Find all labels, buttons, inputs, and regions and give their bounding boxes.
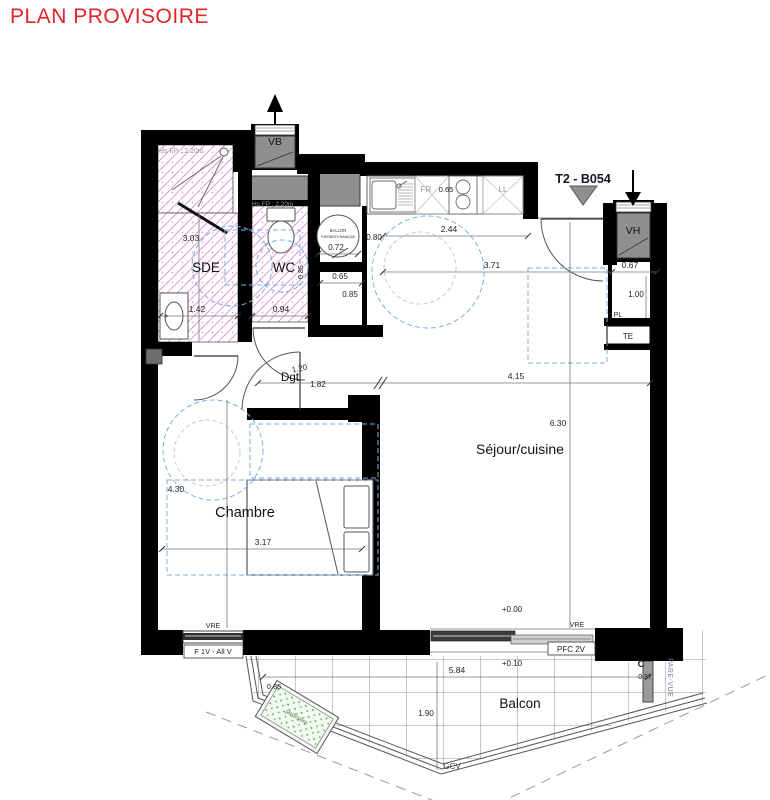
- floor-plan-canvas: PLAN PROVISOIRE: [0, 0, 770, 800]
- vh-unit: VH: [613, 170, 654, 262]
- window-spec-label: F 1V - All V: [194, 647, 232, 656]
- dim-sde-w: 1.42: [189, 304, 206, 314]
- te-label: TE: [623, 332, 633, 341]
- dim-sejour-h: 6.30: [550, 418, 567, 428]
- dim-pl-w: 0.67: [622, 260, 639, 270]
- window-type-label: VRE: [206, 623, 221, 630]
- pillow: [344, 532, 369, 572]
- pillow: [344, 486, 369, 528]
- electrical-panel: TE: [607, 326, 650, 344]
- fridge-label: FR: [421, 185, 432, 194]
- wall-niche-box: [146, 349, 162, 364]
- dim-niche-w: 0.65: [332, 272, 348, 281]
- bedroom-window: VRE F 1V - All V: [183, 623, 243, 658]
- vb-arrow-up-icon: [267, 94, 283, 124]
- level-sejour: +0.00: [502, 605, 523, 614]
- balcony: jardinière: [206, 630, 770, 800]
- vh-label: VH: [626, 225, 641, 237]
- hob: [449, 176, 477, 214]
- washer-label: LL: [499, 185, 508, 194]
- pare-vue-label: PARE-VUE: [666, 658, 673, 697]
- dim-pare-vue: 0.37: [638, 674, 652, 681]
- dim-niche-h: 0.85: [342, 290, 358, 299]
- floor-plan-svg: jardinière: [0, 0, 770, 800]
- closet-label: PL: [614, 312, 623, 319]
- dim-wc-w: 0.94: [273, 304, 290, 314]
- page-title: PLAN PROVISOIRE: [10, 5, 209, 29]
- room-sde: SDE: [192, 260, 220, 275]
- dim-dgt-l: 1.82: [310, 380, 326, 389]
- dim-sejour-w: 4.15: [508, 371, 525, 381]
- c-marker-label: C: [638, 659, 645, 670]
- ballon-label-1: BALLON: [330, 228, 347, 233]
- room-balcon: Balcon: [499, 696, 540, 711]
- dim-balcon-d: 1.90: [418, 709, 434, 718]
- room-sejour: Séjour/cuisine: [476, 441, 564, 457]
- dim-closet-w: 0.80: [366, 233, 382, 242]
- dim-kitchen-d: 0.65: [439, 185, 454, 194]
- gcv-label: GCV: [443, 762, 461, 771]
- height-label-wc: Hs FP : 2.20m: [252, 201, 293, 208]
- unit-code-label: T2 - B054: [555, 172, 611, 186]
- kitchen-counter: FR LL: [367, 176, 523, 214]
- sink-bowl: [372, 181, 396, 209]
- sliding-door-type-label: VRE: [570, 622, 585, 629]
- ballon-label-2: THERMODYNAMIQUE: [320, 235, 356, 239]
- dim-chambre-h: 4.30: [168, 484, 185, 494]
- dim-balcon-w: 5.84: [449, 665, 466, 675]
- vb-unit: VB: [251, 94, 299, 170]
- dim-wc-side: 0.85: [298, 265, 305, 279]
- unit-triangle-icon: [570, 186, 597, 205]
- pare-vue-panel: [643, 661, 653, 702]
- level-balcon: +0.10: [502, 659, 523, 668]
- room-wc: WC: [273, 260, 296, 275]
- dim-entry-w: 3.71: [484, 260, 501, 270]
- room-chambre: Chambre: [215, 505, 275, 521]
- sde-door: [194, 356, 238, 400]
- dim-kitchen-w: 2.44: [441, 224, 458, 234]
- vb-label: VB: [268, 136, 282, 148]
- dim-chambre-w: 3.17: [255, 537, 272, 547]
- height-label-shower: Hs FP : 2.20m: [159, 148, 204, 155]
- unit-marker: T2 - B054: [555, 172, 611, 205]
- dim-jardiniere: 0.85: [267, 682, 282, 691]
- sliding-door-spec-label: PFC 2V: [557, 645, 586, 654]
- dim-pl-h: 1.00: [628, 290, 644, 299]
- bed: [247, 480, 373, 575]
- dim-sde-h: 3.03: [183, 233, 200, 243]
- room-dgt: Dgt: [281, 372, 300, 384]
- shower-head-icon: [220, 148, 228, 156]
- duct-box-kitchen: [314, 170, 360, 206]
- dim-ballon-d: 0.72: [328, 243, 344, 252]
